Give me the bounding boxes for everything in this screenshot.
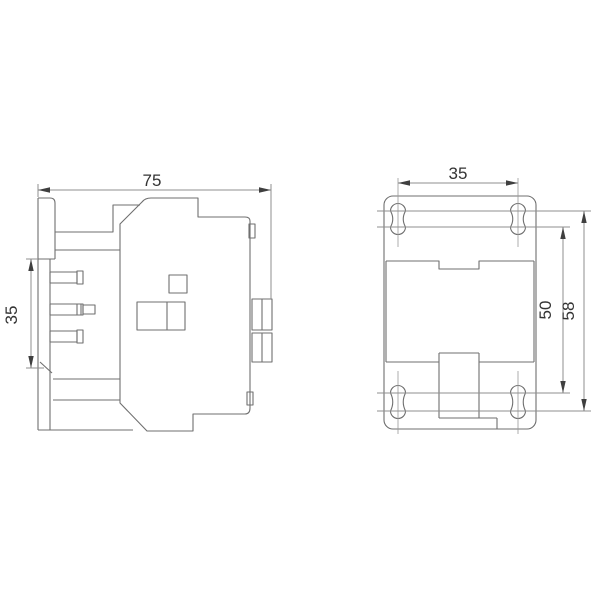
inner-pitch-dimension-label: 50: [536, 301, 555, 320]
marking-window-small: [169, 275, 187, 293]
terminal-pin-1: [50, 272, 77, 283]
rear-terminal-pins: [50, 271, 95, 343]
mounting-plate-outline: [384, 196, 536, 429]
side-view: 75 35: [2, 171, 272, 431]
front-body: [386, 261, 534, 429]
rail-height-dimension-label: 35: [2, 306, 21, 325]
terminal-pin-3-cap: [77, 330, 83, 343]
front-body-top-edge-with-notch: [386, 261, 534, 269]
technical-drawing-page: 75 35: [0, 0, 600, 600]
terminal-pin-1-cap: [77, 271, 83, 284]
front-view: 35 50 58: [377, 164, 591, 434]
hole-spacing-dimension-label: 35: [449, 164, 468, 183]
width-dimension-label: 75: [143, 171, 162, 190]
bracket-top-hook: [38, 198, 140, 232]
vertical-pitch-dimensions: 50 58: [377, 211, 591, 411]
front-terminal-blocks: [252, 299, 272, 362]
outer-pitch-dimension-label: 58: [559, 302, 578, 321]
terminal-pin-2: [50, 304, 83, 315]
din-clip-slider: [439, 353, 497, 429]
hole-spacing-dimension: 35: [398, 164, 518, 183]
mounting-slots: [391, 178, 526, 434]
contactor-dimension-drawing: 75 35: [0, 0, 600, 600]
terminal-pin-2-tip: [83, 305, 95, 314]
terminal-pin-3: [50, 331, 77, 342]
marking-window-large: [137, 302, 185, 330]
width-dimension: 75: [38, 171, 271, 299]
